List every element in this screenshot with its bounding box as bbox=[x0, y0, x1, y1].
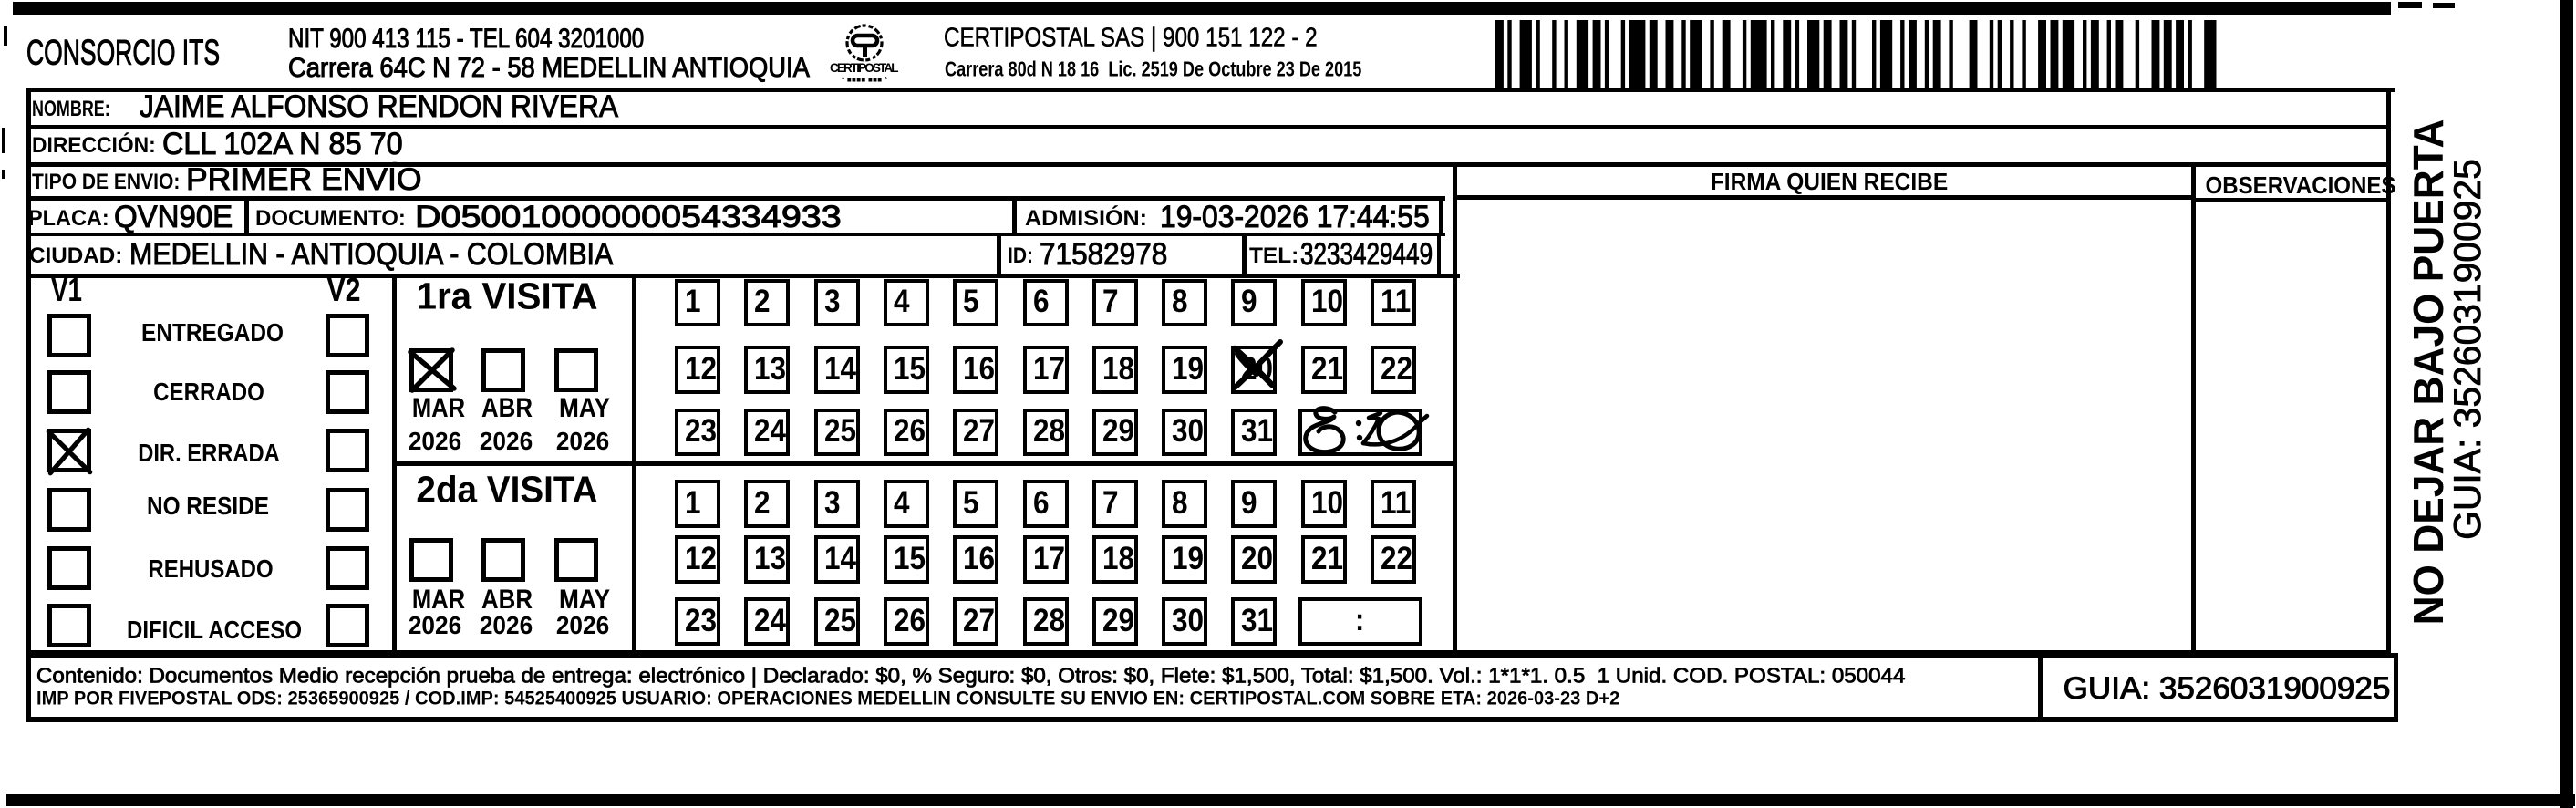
svg-text:CERTIPOSTAL: CERTIPOSTAL bbox=[830, 61, 899, 75]
svg-text:* ■■■■ ■■■ *: * ■■■■ ■■■ * bbox=[842, 76, 888, 84]
